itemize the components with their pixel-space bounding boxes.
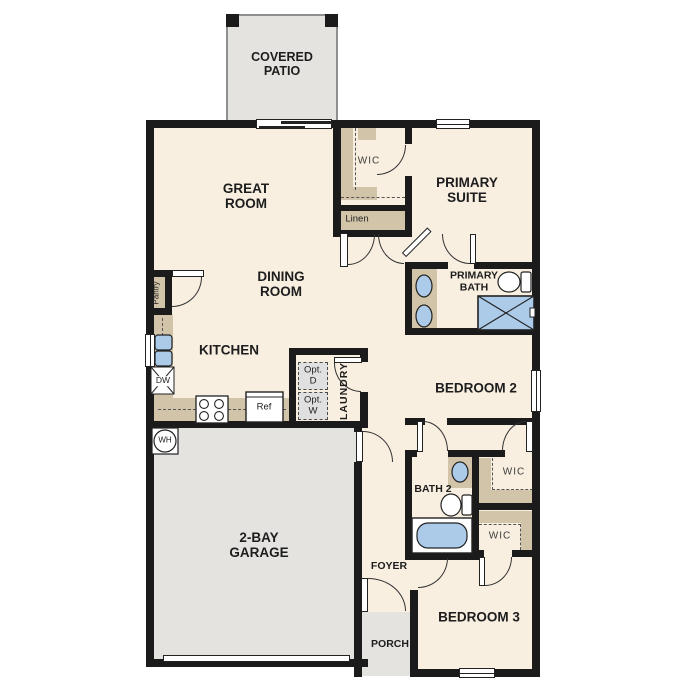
label-dishwasher: DW (155, 376, 171, 386)
wall (405, 124, 412, 144)
label-laundry: LAUNDRY (339, 362, 351, 420)
floor-plan: COVERED PATIO GREAT ROOM PRIMARY SUITE W… (0, 0, 687, 687)
primary-wic-shelf-top (358, 126, 376, 140)
counter-dash (162, 318, 163, 366)
door-leaf (340, 233, 348, 267)
primary-bath-vanity (412, 268, 437, 328)
window-bedroom3 (459, 668, 495, 678)
wall (405, 262, 412, 335)
wall (410, 552, 418, 560)
wall (341, 205, 407, 211)
label-kitchen: KITCHEN (199, 342, 259, 357)
label-primary-bath: PRIMARY BATH (443, 270, 505, 294)
label-refrigerator: Ref (257, 403, 272, 414)
wall (146, 120, 154, 667)
wall (289, 348, 368, 355)
patio-post-right-icon (325, 14, 338, 27)
label-primary-wic: WIC (358, 155, 380, 166)
wall (405, 328, 540, 335)
shelf-dash (520, 524, 521, 550)
shelf-dash (355, 128, 356, 190)
window-primary-suite (436, 119, 470, 129)
wall (474, 262, 540, 269)
label-foyer: FOYER (371, 561, 407, 573)
label-great-room: GREAT ROOM (207, 181, 285, 211)
window-bedroom2 (531, 370, 541, 412)
sliding-glass-door-icon (256, 119, 332, 129)
wall (405, 176, 412, 237)
label-covered-patio: COVERED PATIO (241, 50, 323, 78)
label-opt-washer: Opt. W (300, 395, 326, 416)
label-garage: 2-BAY GARAGE (211, 530, 307, 560)
wic2-shelf-top (479, 511, 533, 523)
label-pantry: Pantry (153, 281, 162, 304)
label-bedroom2: BEDROOM 2 (435, 380, 517, 395)
primary-wic-shelf-bottom (341, 187, 377, 200)
label-bedroom3-wic: WIC (489, 530, 511, 541)
wall (146, 308, 172, 315)
wall (146, 421, 368, 428)
wall (410, 590, 418, 677)
wic1-shelf-bottom (479, 490, 533, 503)
shelf-dash (341, 197, 405, 198)
label-water-heater: WH (158, 437, 171, 446)
label-bath2: BATH 2 (412, 484, 454, 496)
wall (472, 503, 540, 510)
wall (354, 462, 362, 677)
wall (472, 550, 484, 557)
wall (405, 450, 412, 560)
door-leaf (172, 270, 204, 277)
front-door-leaf (361, 578, 368, 612)
label-primary-suite: PRIMARY SUITE (422, 175, 512, 205)
door-leaf (356, 431, 363, 462)
label-dining-room: DINING ROOM (240, 269, 322, 299)
shelf-dash (479, 524, 521, 525)
door-leaf (470, 234, 476, 264)
window-kitchen (145, 334, 155, 367)
label-bedroom3: BEDROOM 3 (438, 609, 520, 624)
shelf-dash (492, 458, 493, 490)
wall (512, 550, 540, 557)
wall (165, 270, 172, 310)
label-bedroom2-wic: WIC (503, 466, 525, 477)
wall (289, 348, 296, 428)
door-leaf (526, 421, 533, 452)
label-opt-dryer: Opt. D (300, 365, 326, 386)
label-linen: Linen (345, 215, 368, 226)
wall (333, 120, 341, 236)
garage-door-icon (163, 655, 350, 662)
label-porch: PORCH (371, 639, 409, 651)
patio-post-left-icon (226, 14, 239, 27)
wall (146, 120, 540, 128)
shelf-dash (492, 489, 533, 490)
